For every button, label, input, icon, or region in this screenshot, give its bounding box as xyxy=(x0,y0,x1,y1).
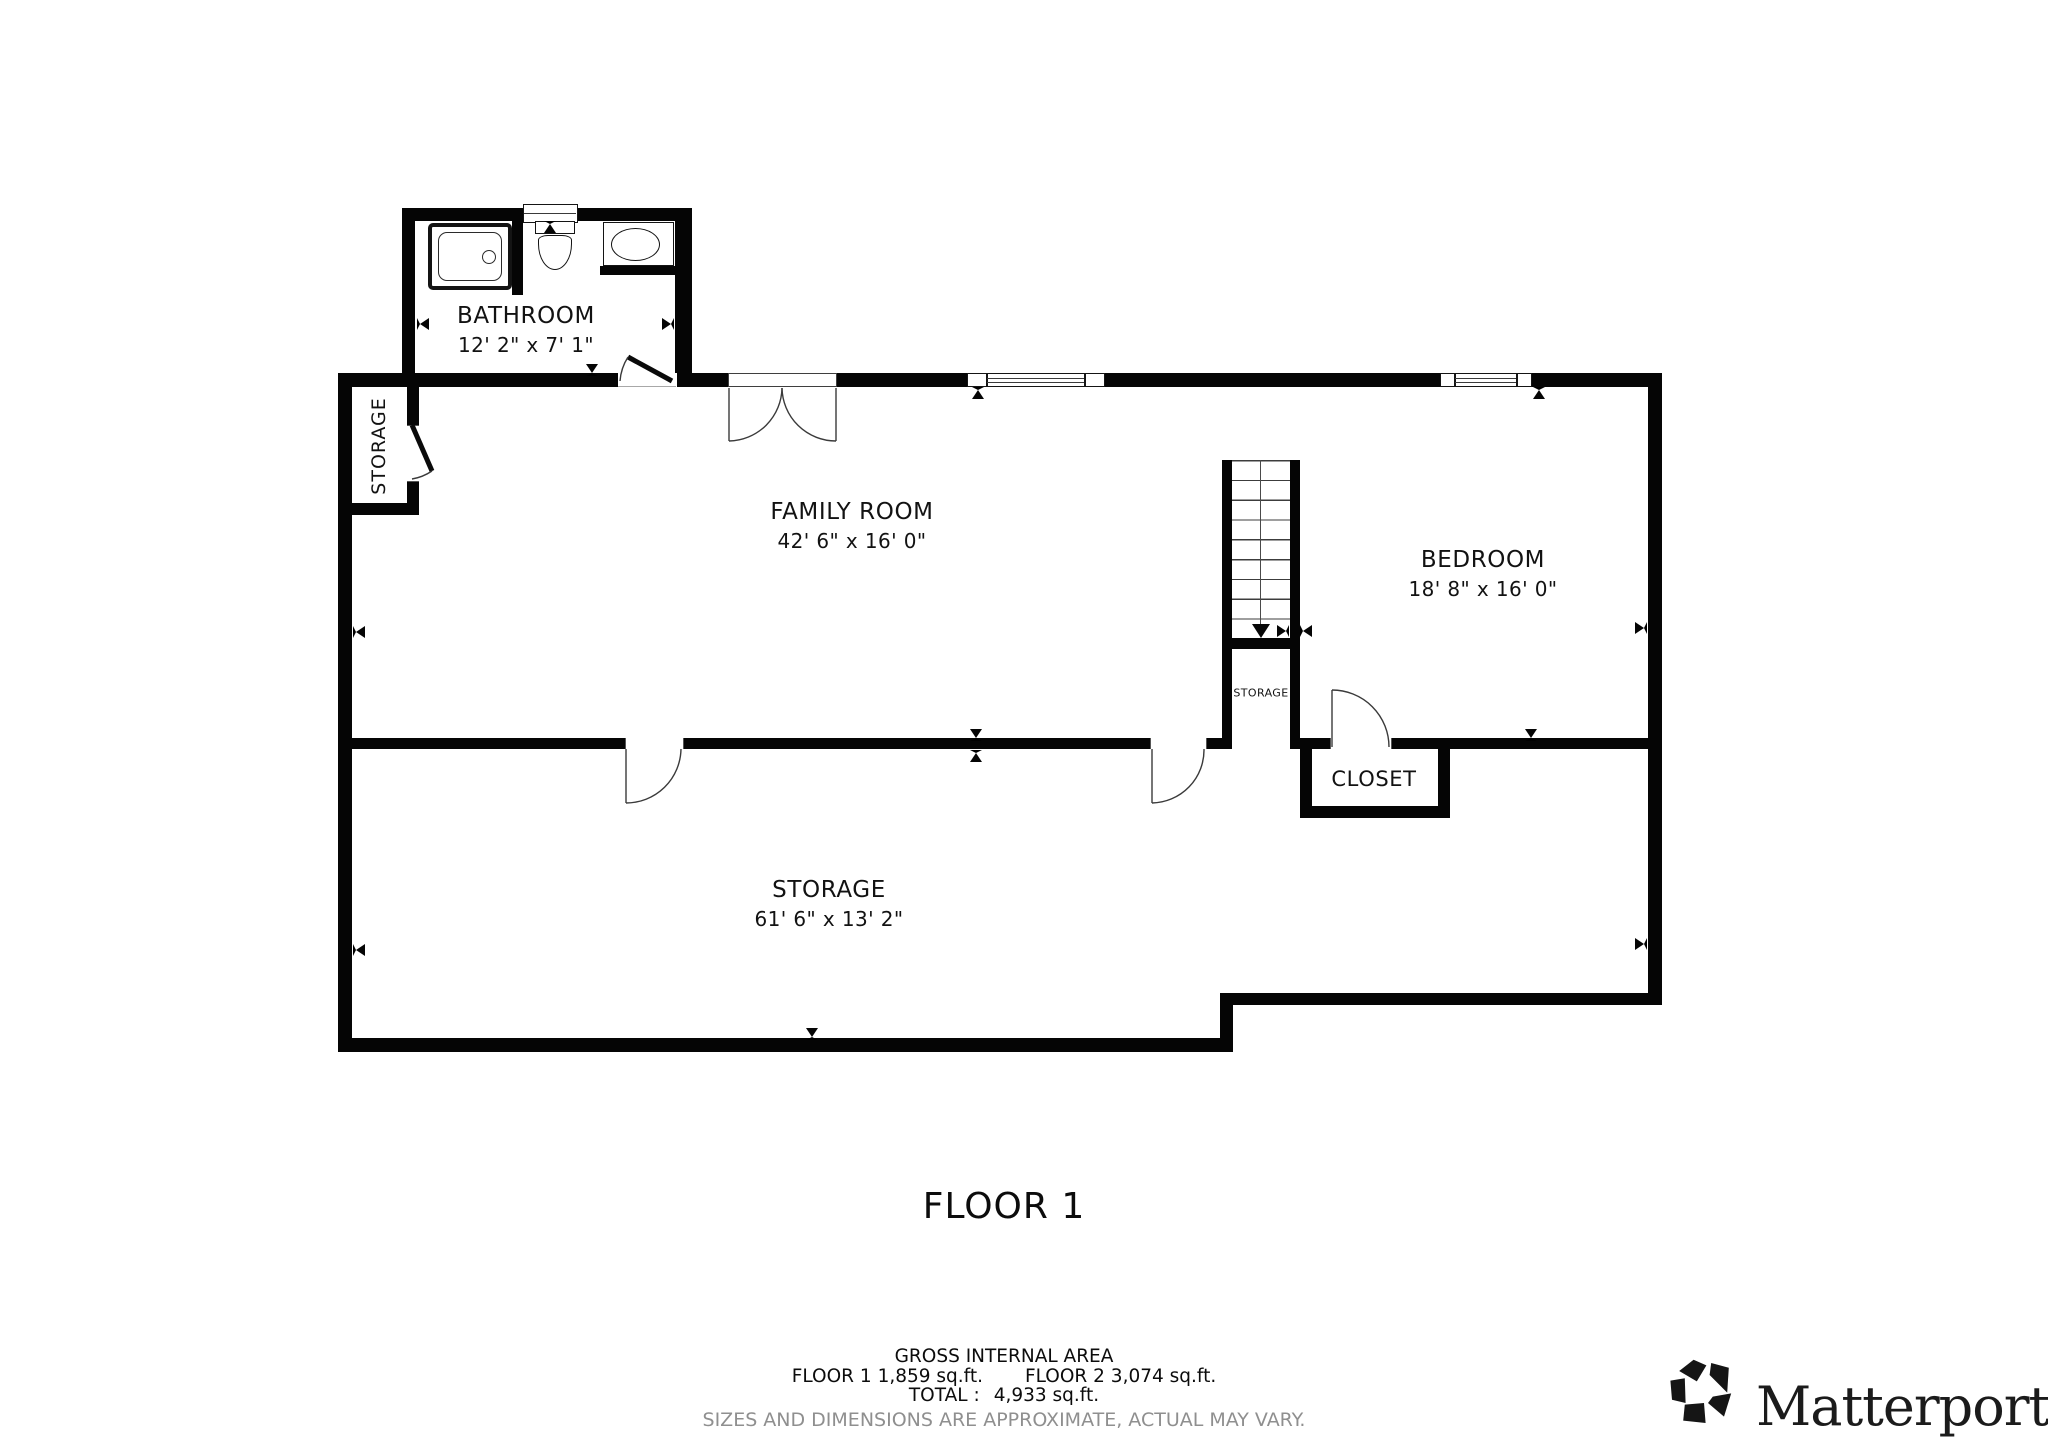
room-name: STORAGE xyxy=(1233,687,1288,700)
wall-marker xyxy=(353,626,365,638)
door-swings xyxy=(0,0,2048,1448)
wall-marker xyxy=(1635,622,1647,634)
sink-basin xyxy=(611,228,660,261)
room-label-storage-left: STORAGE xyxy=(368,397,390,494)
room-dimensions: 61' 6" x 13' 2" xyxy=(754,907,903,931)
door-swing-arc xyxy=(782,388,836,441)
wall-marker xyxy=(662,318,674,330)
wall-marker xyxy=(544,221,556,233)
room-label-bedroom: BEDROOM 18' 8" x 16' 0" xyxy=(1408,547,1557,601)
matterport-logo-icon xyxy=(1668,1344,1748,1438)
floor2-area: FLOOR 2 3,074 sq.ft. xyxy=(1025,1366,1216,1387)
room-name: BEDROOM xyxy=(1421,547,1545,573)
wall-marker xyxy=(586,364,598,376)
matterport-branding: Matterport® xyxy=(1668,1336,2040,1440)
door-swing-arc xyxy=(620,357,628,381)
door-swing-arc xyxy=(626,749,681,803)
wall-marker xyxy=(970,729,982,741)
stair-down-arrow-icon xyxy=(1252,624,1270,638)
room-label-storage-main: STORAGE 61' 6" x 13' 2" xyxy=(754,877,903,931)
floor-title: FLOOR 1 xyxy=(0,1186,2008,1227)
room-dimensions: 42' 6" x 16' 0" xyxy=(777,529,926,553)
room-dimensions: 12' 2" x 7' 1" xyxy=(458,333,594,357)
matterport-wordmark: Matterport® xyxy=(1756,1364,2048,1436)
total-value: 4,933 sq.ft. xyxy=(994,1385,1099,1406)
room-name: BATHROOM xyxy=(457,303,595,329)
door-swing-arc xyxy=(729,388,782,441)
stair-direction-line xyxy=(1260,460,1261,626)
wall-marker xyxy=(972,387,984,399)
wall-marker xyxy=(806,1028,818,1040)
wall-marker xyxy=(1533,387,1545,399)
wall-marker xyxy=(1635,938,1647,950)
sink-icon xyxy=(603,222,674,266)
wall-marker xyxy=(1277,625,1289,637)
room-label-closet: CLOSET xyxy=(1331,767,1416,791)
floor1-area: FLOOR 1 1,859 sq.ft. xyxy=(792,1366,983,1387)
room-label-family-room: FAMILY ROOM 42' 6" x 16' 0" xyxy=(770,499,933,553)
room-name: CLOSET xyxy=(1331,767,1416,791)
shower-icon xyxy=(428,223,512,290)
floor-plan: BATHROOM 12' 2" x 7' 1" FAMILY ROOM 42' … xyxy=(0,0,2048,1448)
wall-marker xyxy=(417,318,429,330)
wall-marker xyxy=(970,750,982,762)
room-name: FAMILY ROOM xyxy=(770,499,933,525)
room-label-bathroom: BATHROOM 12' 2" x 7' 1" xyxy=(457,303,595,357)
door-leaf xyxy=(412,425,432,471)
door-swing-arc xyxy=(1332,690,1389,747)
total-label: TOTAL : xyxy=(909,1385,980,1406)
room-label-storage-under-stairs: STORAGE xyxy=(1233,687,1288,700)
brand-name: Matterport xyxy=(1756,1375,2048,1438)
room-name: STORAGE xyxy=(368,397,390,494)
wall-marker xyxy=(1300,625,1312,637)
shower-drain xyxy=(482,250,496,264)
door-leaf xyxy=(628,357,672,381)
door-swing-arc xyxy=(1152,749,1204,803)
room-name: STORAGE xyxy=(772,877,886,903)
wall-marker xyxy=(353,944,365,956)
wall-marker xyxy=(1525,729,1537,741)
door-swing-arc xyxy=(412,471,432,479)
room-dimensions: 18' 8" x 16' 0" xyxy=(1408,577,1557,601)
